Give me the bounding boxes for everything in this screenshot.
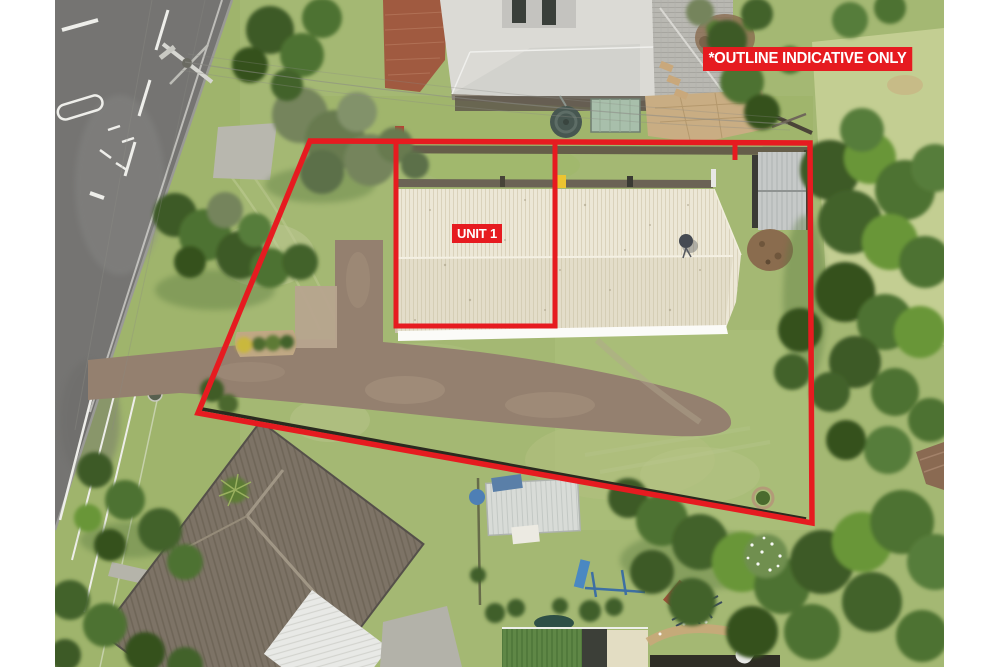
round-bush	[753, 488, 773, 508]
fence-marker-yellow	[557, 175, 566, 188]
main-unit-roof	[395, 189, 741, 341]
outdoor-table	[511, 525, 540, 545]
disclaimer-label: *OUTLINE INDICATIVE ONLY	[703, 47, 912, 71]
aerial-photo-svg	[0, 0, 1000, 667]
unit1-label: UNIT 1	[452, 224, 502, 243]
window	[542, 0, 556, 25]
window	[512, 0, 526, 23]
aerial-photo: UNIT 1 *OUTLINE INDICATIVE ONLY	[0, 0, 1000, 667]
satellite-dish-icon	[679, 234, 693, 248]
